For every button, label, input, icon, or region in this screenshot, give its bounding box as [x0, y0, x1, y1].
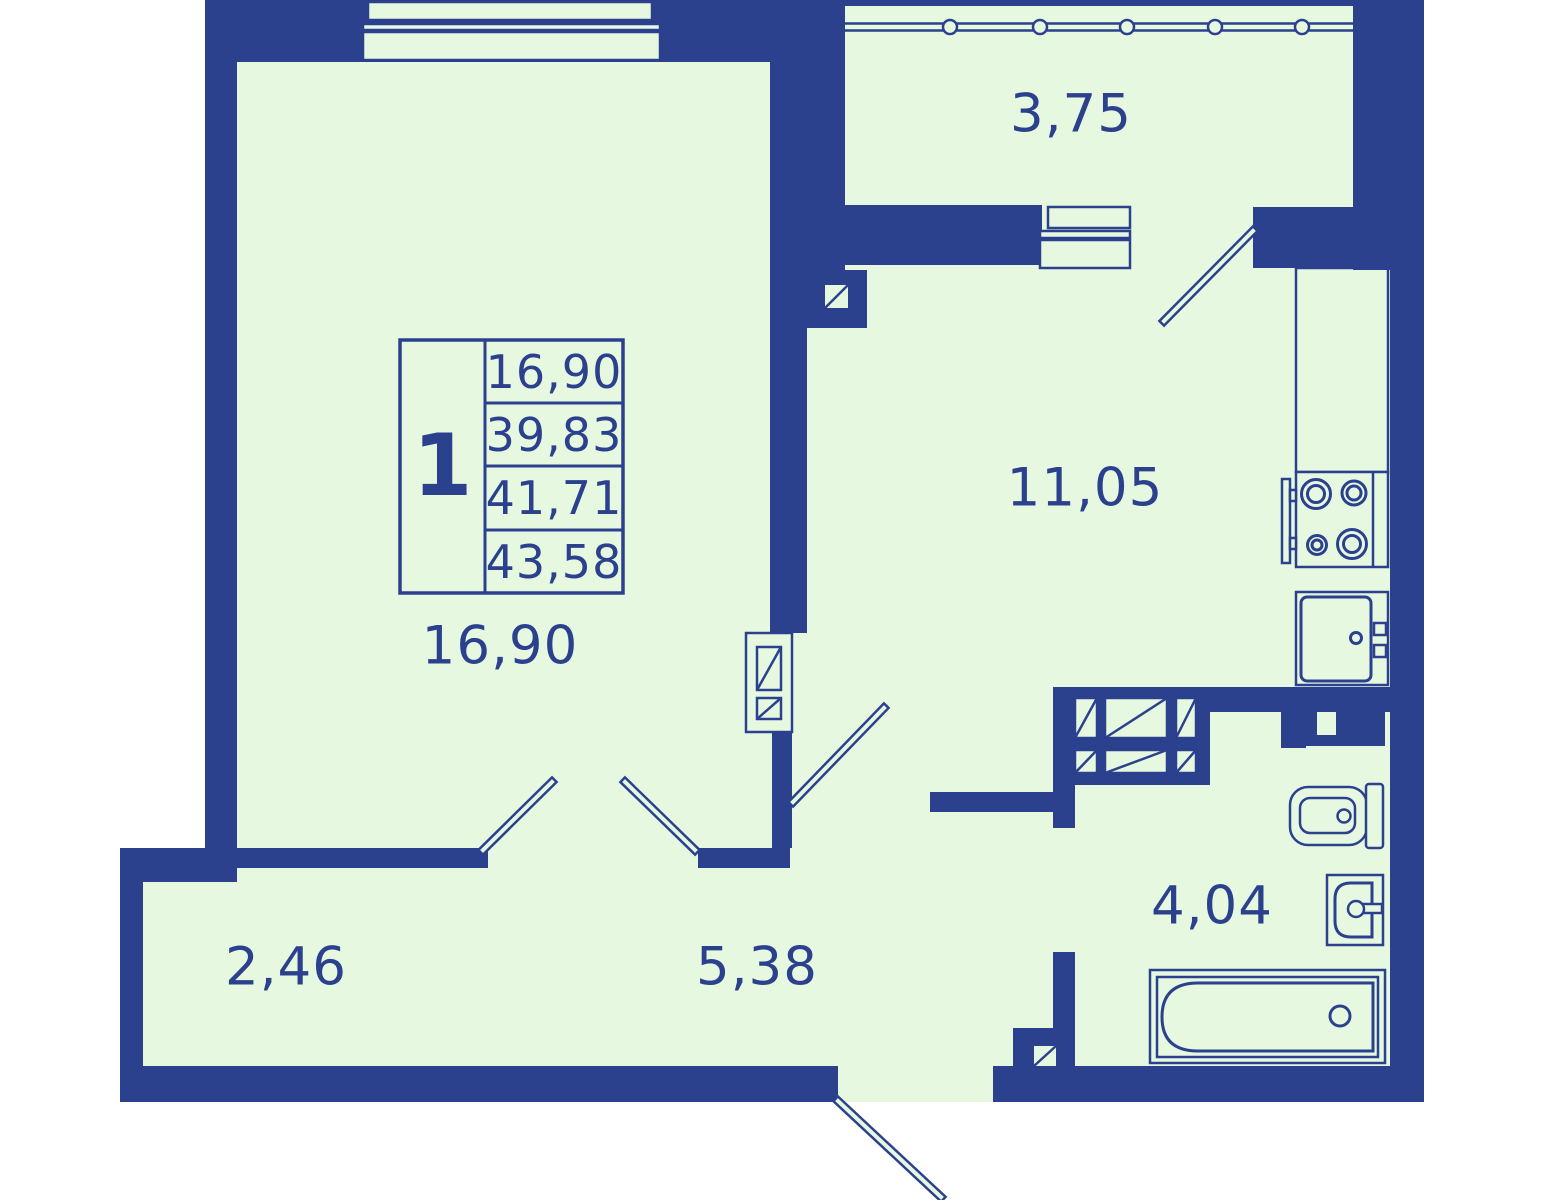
wall-bottom-left — [120, 1066, 838, 1102]
window-kitchen-balcony — [1040, 207, 1130, 268]
wall-balcony-kitchen-left — [845, 205, 1042, 265]
sink-tap — [1374, 645, 1386, 657]
stove-rail-tab — [1290, 490, 1296, 501]
window-pane — [368, 2, 652, 20]
wall-bath-left — [1053, 952, 1075, 1066]
floorplan-svg: 1 16,90 39,83 41,71 43,58 3,75 11,05 16,… — [0, 0, 1545, 1200]
glazing-joint — [1295, 20, 1309, 34]
washbasin — [1327, 875, 1383, 945]
label-corridor-area: 5,38 — [696, 937, 818, 998]
sink-cabinet — [1296, 592, 1388, 685]
label-hallway-area: 2,46 — [225, 937, 347, 998]
wall-left-lower — [120, 848, 143, 1102]
info-value-area: 39,83 — [486, 408, 623, 462]
wall-partition-top — [770, 0, 845, 270]
wall-bottom-right — [993, 1066, 1424, 1102]
label-bathroom-area: 4,04 — [1151, 876, 1273, 937]
glazing-joint — [1033, 20, 1047, 34]
toilet — [1290, 784, 1383, 848]
wall-vent-block — [770, 270, 867, 328]
window-living — [363, 2, 660, 60]
window-pane — [1048, 207, 1130, 228]
wall-hall-stub — [930, 792, 1073, 812]
label-kitchen-area: 11,05 — [1007, 458, 1164, 519]
wall-living-bottom — [143, 848, 488, 868]
window-sill — [1040, 231, 1130, 238]
door-entrance — [838, 1101, 941, 1197]
label-balcony-area: 3,75 — [1010, 84, 1132, 145]
wall-door-stub — [698, 848, 790, 868]
rooms-count: 1 — [413, 416, 474, 516]
info-value-living: 16,90 — [486, 345, 623, 399]
kitchen-sink — [1296, 592, 1388, 685]
duct-stub — [1281, 712, 1306, 748]
glazing-joint — [1120, 20, 1134, 34]
wall-partition-mid — [770, 328, 807, 633]
basin-tap — [1348, 901, 1364, 917]
wall-left-upper — [205, 0, 237, 848]
label-living-area: 16,90 — [422, 616, 579, 677]
stove-rail-tab — [1290, 538, 1296, 549]
toilet-tank — [1366, 784, 1383, 848]
duct-notch — [1317, 712, 1336, 735]
wardrobe — [1075, 698, 1196, 773]
balcony-top-line — [840, 0, 1424, 6]
bathtub — [1150, 970, 1385, 1063]
sink-tap — [1374, 623, 1386, 635]
stove — [1282, 472, 1388, 567]
wall-right — [1390, 265, 1424, 1102]
wall-balcony-kitchen-right — [1253, 207, 1392, 268]
window-sill — [363, 24, 660, 30]
floorplan-canvas: 1 16,90 39,83 41,71 43,58 3,75 11,05 16,… — [0, 0, 1545, 1200]
info-value-total: 43,58 — [486, 535, 623, 589]
wall-partition-low — [772, 732, 792, 848]
window-pane — [1040, 240, 1130, 268]
glazing-joint — [943, 20, 957, 34]
window-pane — [363, 32, 660, 60]
glazing-joint — [1208, 20, 1222, 34]
info-value-area2: 41,71 — [486, 471, 623, 525]
